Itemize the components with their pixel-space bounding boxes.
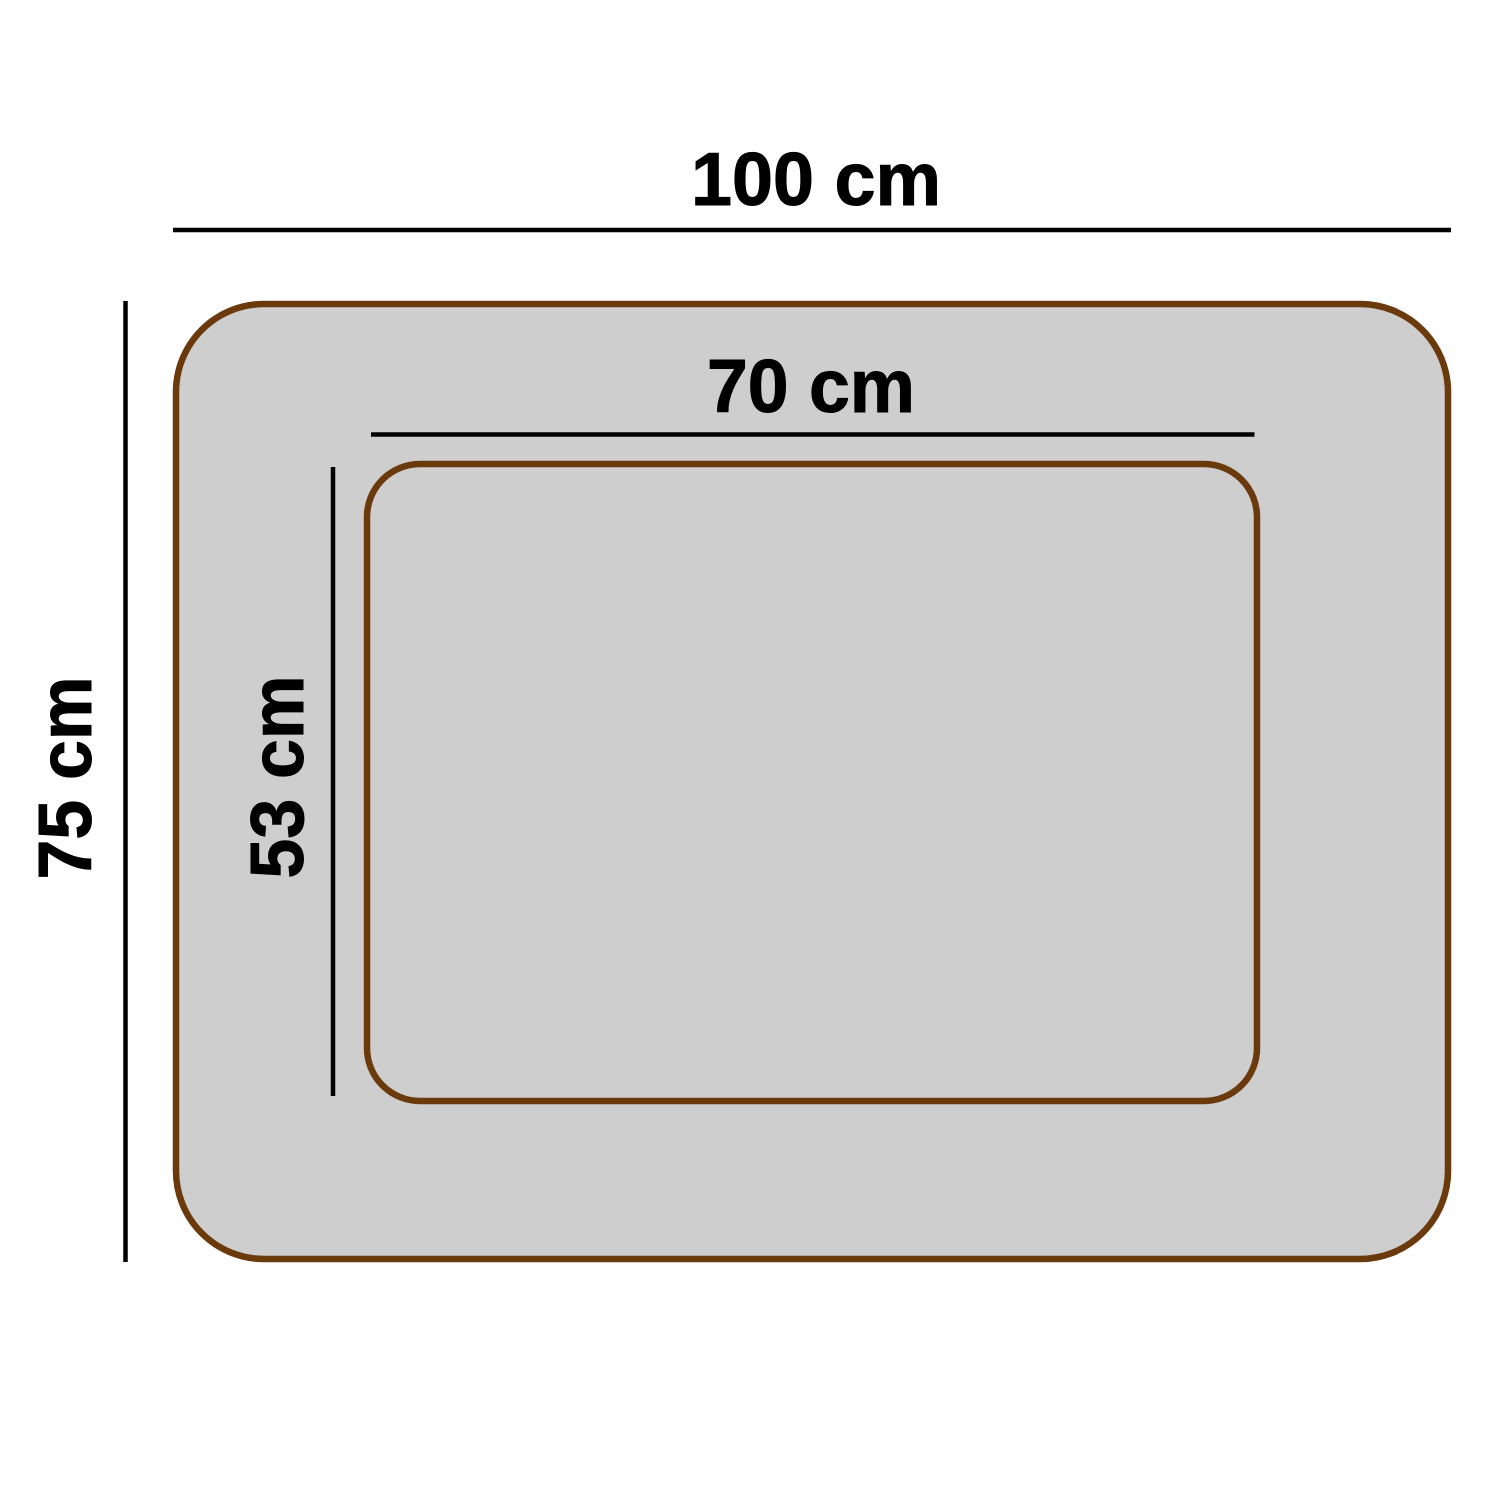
svg-text:70 cm: 70 cm [707, 344, 915, 428]
svg-text:53 cm: 53 cm [235, 676, 319, 879]
svg-text:100 cm: 100 cm [691, 137, 941, 221]
svg-text:75 cm: 75 cm [23, 677, 107, 880]
